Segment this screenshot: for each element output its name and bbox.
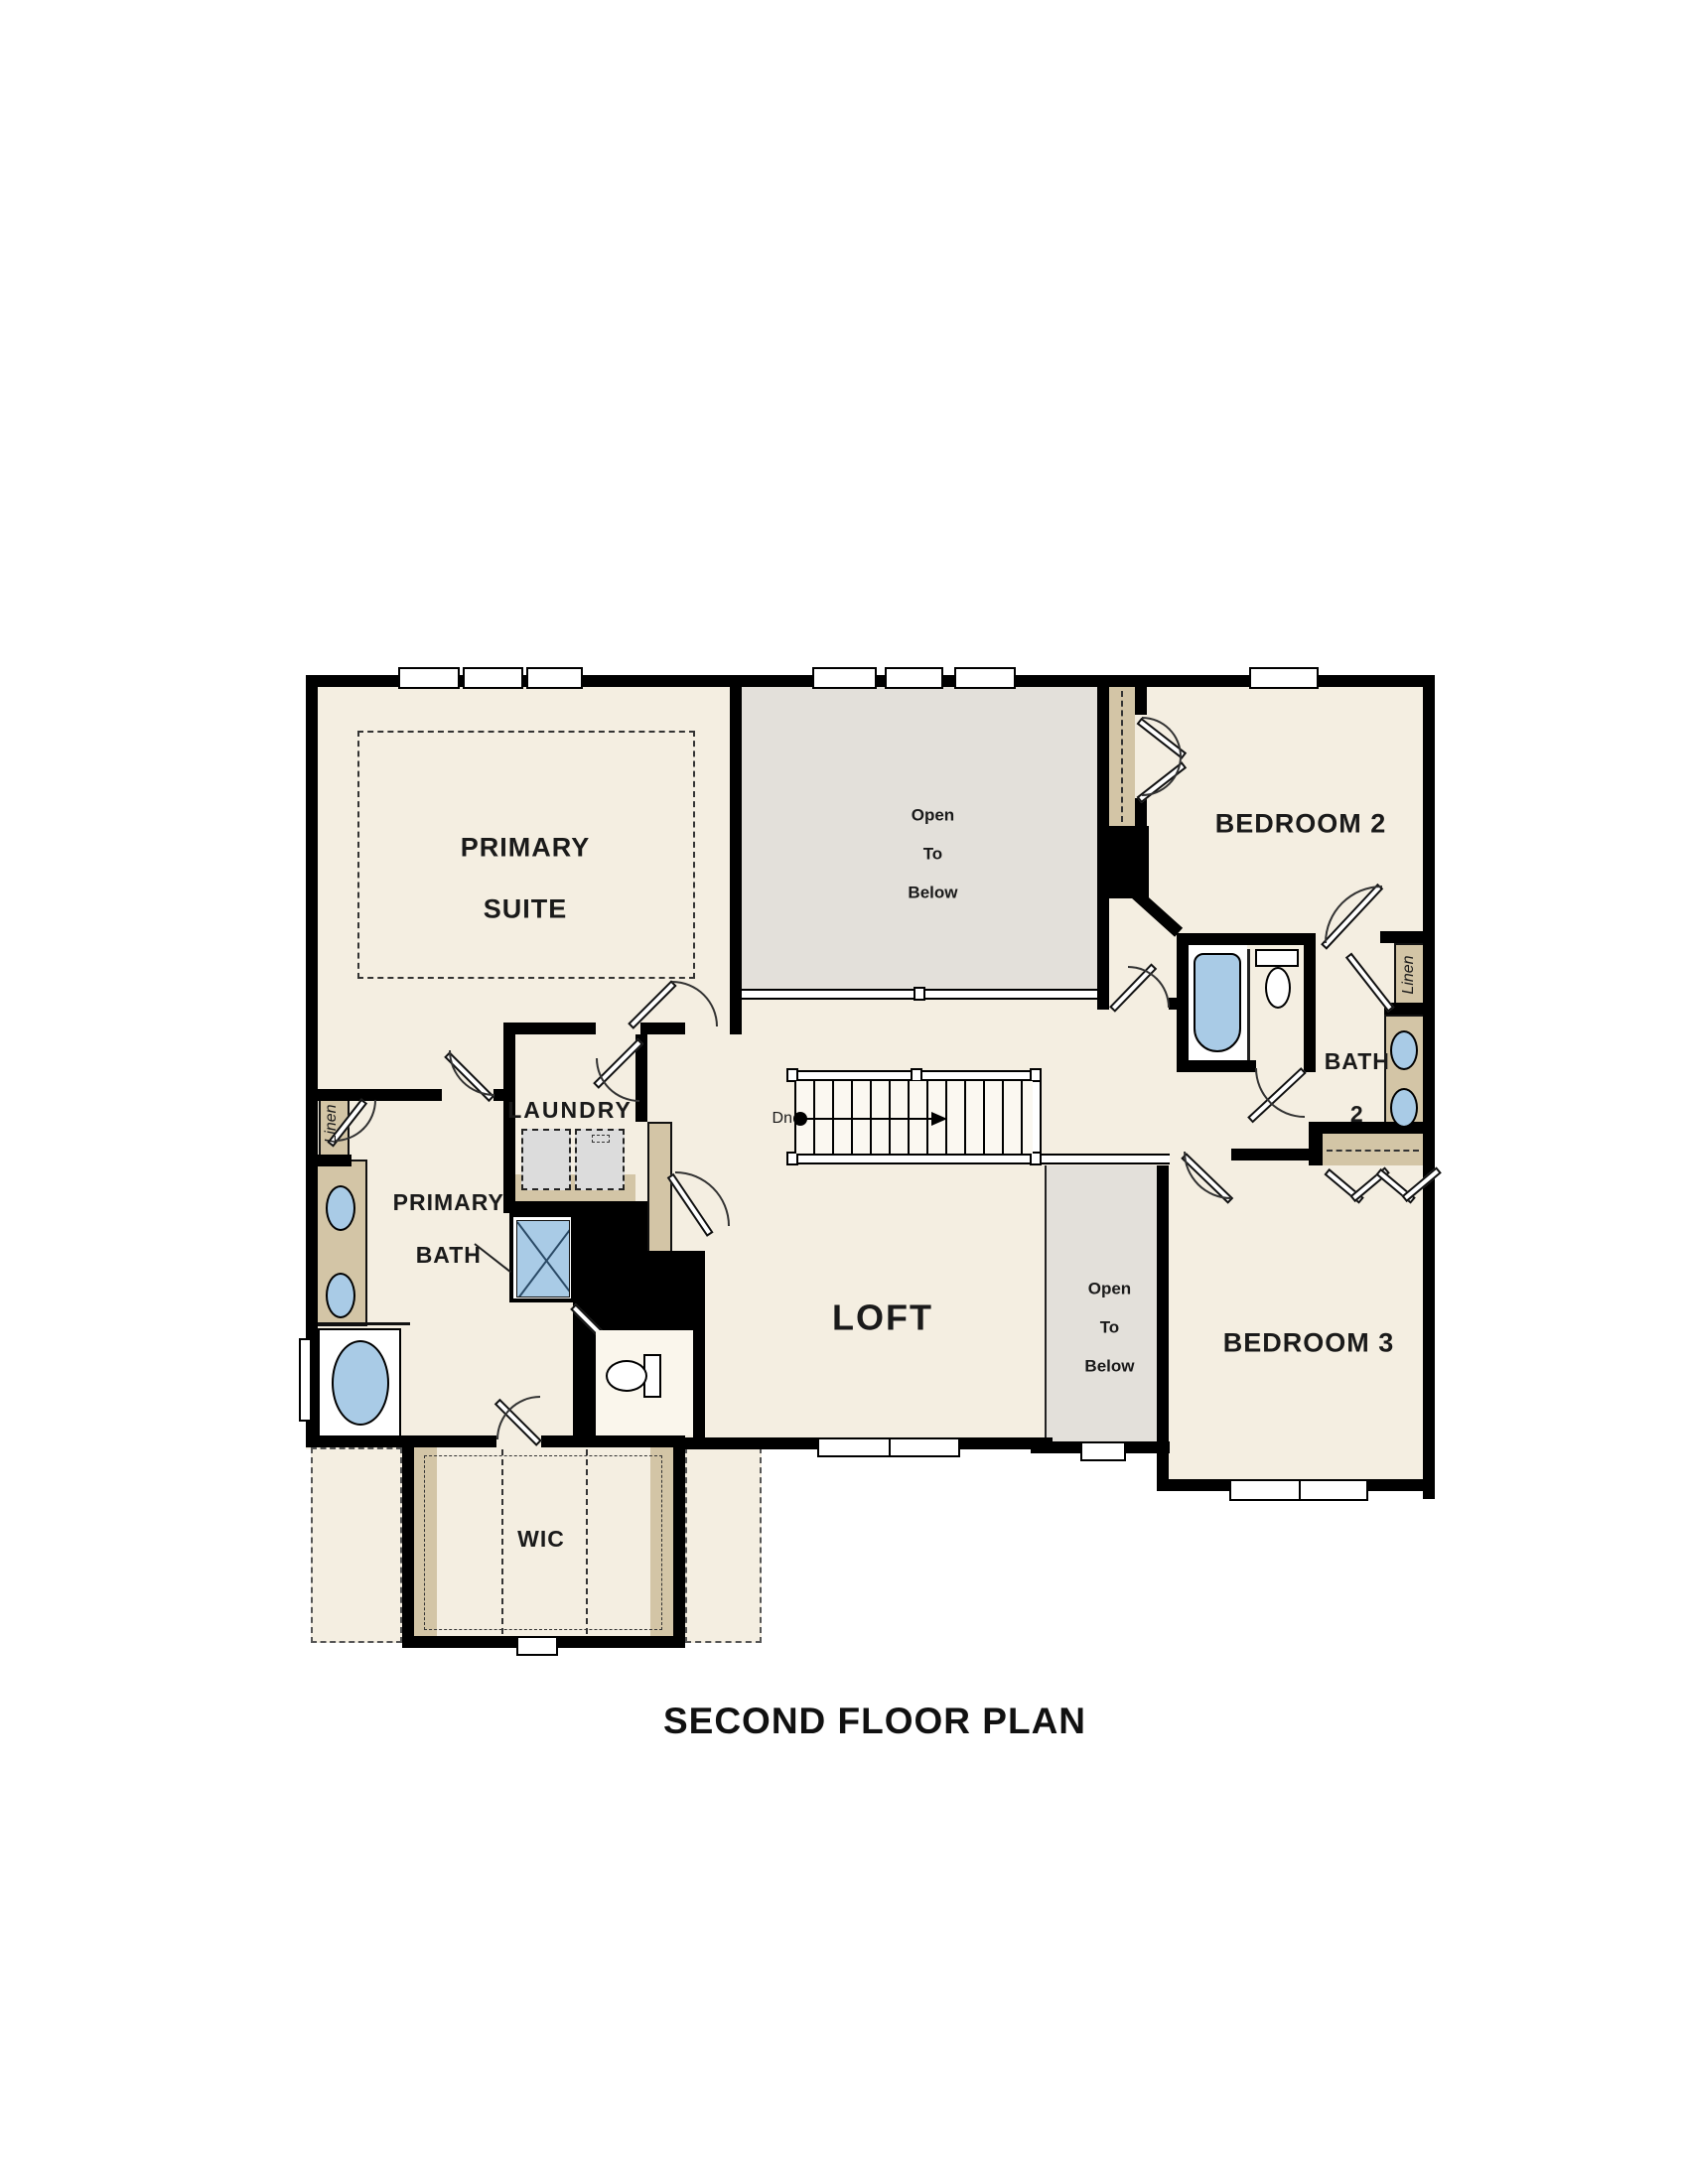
stairs-post-tl (786, 1068, 798, 1082)
dryer-detail (592, 1135, 610, 1143)
wall-laundry-bottom (503, 1201, 647, 1213)
window-suite-1 (398, 667, 460, 689)
stairs-bottom-railing (789, 1154, 1170, 1164)
open-below-line1: Open (912, 805, 954, 824)
window-bedroom2 (1249, 667, 1319, 689)
label-primary-suite-line1: PRIMARY (461, 832, 591, 862)
bath2-tub (1194, 953, 1241, 1052)
plan-title: SECOND FLOOR PLAN (663, 1701, 1086, 1742)
primary-bath-line2: BATH (416, 1242, 482, 1268)
label-linen-primary: Linen (323, 1104, 341, 1143)
label-dn: Dn (773, 1110, 792, 1128)
window-mullion (889, 1439, 891, 1455)
primary-vanity-counter-edge (316, 1322, 410, 1325)
floor-plan-canvas: PRIMARY SUITE Open To Below BEDROOM 2 BA… (0, 0, 1688, 2184)
stairs-post-bl (786, 1152, 798, 1165)
label-primary-suite-line2: SUITE (484, 894, 568, 924)
label-laundry: LAUNDRY (507, 1097, 633, 1123)
primary-tub (332, 1340, 389, 1426)
label-linen-bath2: Linen (1400, 955, 1418, 994)
wall-chase-block (1097, 826, 1149, 898)
window-openbelow-3 (954, 667, 1016, 689)
window-openbelow-1 (812, 667, 877, 689)
wall-bath2comp-top (1177, 933, 1316, 945)
roof-outline-left (311, 1447, 402, 1643)
bath2-sink-1 (1390, 1030, 1418, 1070)
window-loft-bottom (817, 1437, 960, 1457)
bath2-line1: BATH (1325, 1048, 1390, 1074)
washer (521, 1129, 571, 1190)
wall-bath2comp-left (1177, 945, 1189, 1072)
stairs-direction-line (804, 1118, 931, 1120)
open-below2-line2: To (1100, 1317, 1120, 1336)
bath2-toilet-tank (1255, 949, 1299, 967)
window-bedroom3 (1229, 1479, 1368, 1501)
window-openbelow-2 (885, 667, 943, 689)
wall-bath2comp-bottom (1177, 1060, 1256, 1072)
wic-divider-1 (501, 1449, 503, 1634)
wall-suite-openbelow (730, 687, 742, 989)
label-primary-bath: PRIMARY BATH (363, 1163, 504, 1295)
wall-left (306, 675, 318, 1447)
wall-suite-openbelow-lower (730, 989, 742, 1034)
wall-linen2-top (1380, 931, 1423, 943)
wall-black-mass-1 (573, 1213, 647, 1300)
open-below2-line1: Open (1088, 1279, 1131, 1297)
roof-outline-right (685, 1447, 762, 1643)
window-tub-left (299, 1338, 312, 1422)
wall-suite-bottom-a (503, 1023, 596, 1034)
label-bath2: BATH 2 (1295, 1023, 1390, 1154)
primary-shower (509, 1213, 575, 1302)
wall-right (1423, 675, 1435, 1499)
window-suite-3 (526, 667, 583, 689)
wall-wic-top-b (541, 1435, 685, 1447)
bath2-toilet-bowl (1265, 967, 1291, 1009)
wall-bedroom2-left-stub (1135, 687, 1147, 715)
primary-sink-2 (326, 1273, 355, 1318)
label-primary-suite: PRIMARY SUITE (427, 801, 591, 955)
wall-loft-left (693, 1330, 705, 1437)
primary-bath-line1: PRIMARY (393, 1189, 504, 1215)
wall-wic-right (673, 1435, 685, 1648)
bedroom2-closet-rod (1121, 691, 1123, 822)
shower-pan (516, 1220, 570, 1297)
window-suite-2 (463, 667, 523, 689)
label-loft: LOFT (832, 1297, 933, 1337)
wic-divider-2 (586, 1449, 588, 1634)
primary-toilet-bowl (606, 1360, 647, 1392)
wall-linen1-bottom (316, 1155, 352, 1166)
wall-black-mass-4 (596, 1300, 705, 1330)
open-below-line3: Below (908, 883, 957, 901)
wall-black-mass-2 (647, 1251, 705, 1300)
label-wic: WIC (517, 1526, 565, 1552)
wall-tub-toilet-divider (1247, 949, 1250, 1060)
label-bedroom2: BEDROOM 2 (1215, 808, 1387, 839)
primary-sink-1 (326, 1185, 355, 1231)
label-open-below-upper: Open To Below (890, 786, 958, 922)
railing-post (914, 987, 925, 1001)
label-open-below-lower: Open To Below (1066, 1260, 1135, 1396)
wall-wic-left (402, 1435, 414, 1648)
stairs-post-tr (1030, 1068, 1042, 1082)
bath2-line2: 2 (1350, 1101, 1364, 1127)
window-wic (516, 1636, 558, 1656)
stairs-post-br (1030, 1152, 1042, 1165)
stairs-direction-arrow (931, 1112, 947, 1126)
window-mullion (1299, 1481, 1301, 1499)
label-bedroom3: BEDROOM 3 (1223, 1327, 1395, 1358)
open-below2-line3: Below (1084, 1356, 1134, 1375)
wall-wic-top-a (414, 1435, 496, 1447)
bath2-sink-2 (1390, 1088, 1418, 1128)
open-below-line2: To (923, 844, 943, 863)
window-openbelow2-bottom (1080, 1441, 1126, 1461)
stairs-post-tm (911, 1068, 922, 1082)
hall-chase (647, 1122, 672, 1256)
